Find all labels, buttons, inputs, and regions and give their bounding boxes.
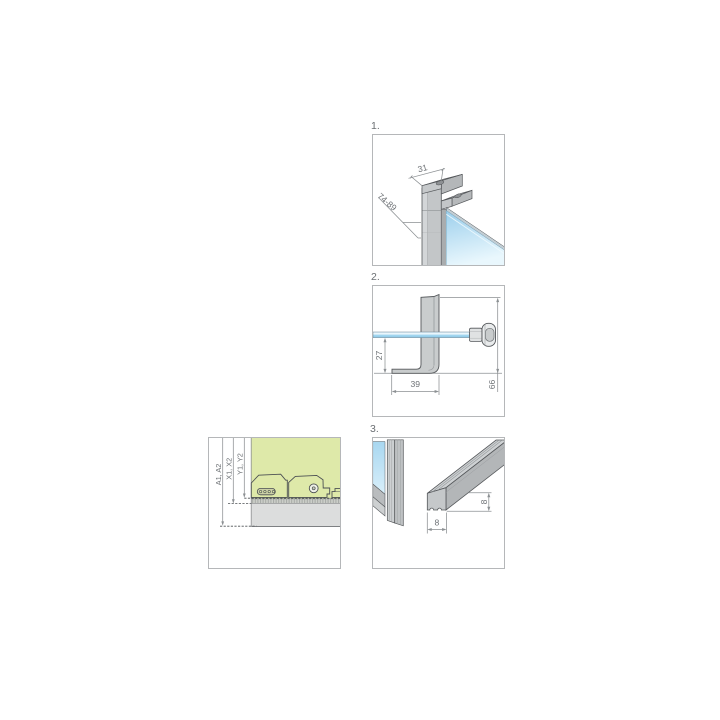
dim-y-label: Y1, Y2	[236, 453, 245, 475]
step2-label: 2.	[371, 271, 380, 283]
dim-h8-label: 8	[479, 499, 489, 504]
step2-panel: 27 39 66	[372, 285, 505, 417]
adjustment-panel: A1, A2 X1, X2 Y1, Y2	[208, 437, 341, 569]
step3-panel: 8 8	[372, 437, 505, 569]
installation-diagram-canvas: 1. 2. 3. 74-89	[0, 0, 720, 720]
rail-track-strip	[251, 499, 340, 504]
dim-27-label: 27	[374, 351, 384, 361]
guide-rail	[251, 503, 340, 526]
dim-39-label: 39	[411, 379, 421, 389]
glass-gasket	[441, 209, 446, 265]
step3-label: 3.	[370, 423, 379, 435]
step3-drawing: 8 8	[372, 437, 505, 569]
dim-66-label: 66	[487, 380, 497, 390]
step1-drawing: 74-89	[372, 134, 505, 266]
glass-strip	[373, 332, 470, 338]
step1-label: 1.	[371, 120, 380, 132]
adjustment-drawing: A1, A2 X1, X2 Y1, Y2	[208, 437, 341, 569]
dim-x-label: X1, X2	[225, 458, 234, 480]
dim-w8-label: 8	[435, 517, 440, 527]
step2-drawing: 27 39 66	[372, 285, 505, 417]
step1-panel: 74-89	[372, 134, 505, 266]
dim-a-label: A1, A2	[214, 464, 223, 486]
